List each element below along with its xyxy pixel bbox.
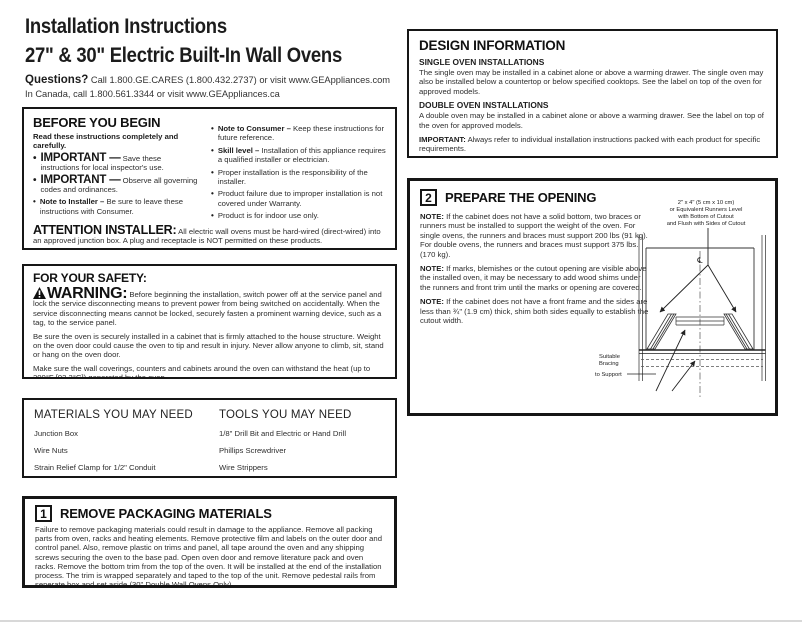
page-title-line1: Installation Instructions: [25, 12, 346, 41]
bullet-icon: •: [33, 176, 37, 195]
bracing-label: Bracing: [599, 361, 619, 367]
step1-heading: REMOVE PACKAGING MATERIALS: [60, 506, 272, 521]
bullet-lead: IMPORTANT —: [41, 152, 121, 164]
materials-heading: MATERIALS YOU MAY NEED: [34, 409, 219, 421]
design-information-box: DESIGN INFORMATION SINGLE OVEN INSTALLAT…: [407, 29, 778, 158]
questions-label: Questions?: [25, 74, 88, 86]
centerline-symbol: ℄: [697, 256, 703, 265]
list-item: • Proper installation is the responsibil…: [211, 168, 386, 187]
materials-column: MATERIALS YOU MAY NEED Junction Box Wire…: [34, 409, 219, 476]
bullet-text: Proper installation is the responsibilit…: [218, 168, 368, 186]
runner-label: and Flush with Sides of Cutout: [667, 221, 746, 227]
step1-body: Failure to remove packaging materials co…: [35, 525, 384, 588]
safety-paragraph-2: Be sure the oven is securely installed i…: [33, 332, 386, 360]
design-info-heading: DESIGN INFORMATION: [419, 38, 766, 53]
bracing-arrow-dashed: [672, 361, 695, 391]
bullet-icon: •: [211, 189, 214, 208]
bullet-lead: Note to Installer –: [40, 197, 105, 206]
important-text: Always refer to individual installation …: [419, 135, 760, 153]
before-you-begin-intro: Read these instructions completely and c…: [33, 132, 201, 151]
double-oven-subheading: DOUBLE OVEN INSTALLATIONS: [419, 100, 766, 110]
note-lead: NOTE:: [420, 264, 444, 273]
bracing-label: Suitable: [599, 354, 620, 360]
step2-heading: PREPARE THE OPENING: [445, 190, 596, 205]
list-item: Phillips Screwdriver: [219, 442, 351, 459]
attention-installer: ATTENTION INSTALLER: All electric wall o…: [33, 226, 386, 246]
step1-number-badge: 1: [35, 505, 52, 522]
list-item: • Note to Consumer – Keep these instruct…: [211, 124, 386, 143]
before-you-begin-box: BEFORE YOU BEGIN Read these instructions…: [22, 107, 397, 250]
bullet-lead: Note to Consumer –: [218, 124, 291, 133]
list-item: Junction Box: [34, 425, 219, 442]
important-lead: IMPORTANT:: [419, 135, 466, 144]
bottom-band: [639, 350, 766, 354]
list-item: • Skill level – Installation of this app…: [211, 146, 386, 165]
runner-label: 2" x 4" (5 cm x 10 cm): [678, 200, 735, 206]
list-item: Wire Nuts: [34, 442, 219, 459]
safety-box: FOR YOUR SAFETY: WARNING: Before beginni…: [22, 264, 397, 379]
header: Installation Instructions 27" & 30" Elec…: [25, 12, 390, 99]
step2-number-badge: 2: [420, 189, 437, 206]
tools-column: TOOLS YOU MAY NEED 1/8" Drill Bit and El…: [219, 409, 351, 476]
prepare-opening-diagram: 2" x 4" (5 cm x 10 cm) or Equivalent Run…: [586, 193, 771, 409]
bullet-text: Product is for indoor use only.: [218, 211, 319, 220]
double-oven-text: A double oven may be installed in a cabi…: [419, 111, 766, 130]
bullet-icon: •: [211, 211, 214, 220]
materials-tools-box: MATERIALS YOU MAY NEED Junction Box Wire…: [22, 398, 397, 478]
right-runner: [724, 314, 753, 349]
design-important: IMPORTANT: Always refer to individual in…: [419, 135, 766, 154]
bullet-lead: Skill level –: [218, 146, 259, 155]
bullet-text: Product failure due to improper installa…: [218, 189, 383, 207]
safety-paragraph-3: Make sure the wall coverings, counters a…: [33, 364, 386, 379]
bullet-icon: •: [211, 124, 214, 143]
note-lead: NOTE:: [420, 212, 444, 221]
questions-text: Call 1.800.GE.CARES (1.800.432.2737) or …: [91, 75, 390, 85]
warning-triangle-icon: [33, 287, 46, 299]
before-you-begin-heading: BEFORE YOU BEGIN: [33, 115, 201, 130]
manual-page: Installation Instructions 27" & 30" Elec…: [0, 0, 802, 622]
tools-heading: TOOLS YOU MAY NEED: [219, 409, 351, 421]
bullet-icon: •: [33, 154, 37, 173]
canada-line: In Canada, call 1.800.561.3344 or visit …: [25, 89, 390, 99]
list-item: • IMPORTANT — Observe all governing code…: [33, 176, 201, 195]
bullet-icon: •: [33, 197, 36, 216]
list-item: • Product is for indoor use only.: [211, 211, 386, 220]
bracing-dashed-lines: [641, 360, 763, 367]
left-runner: [647, 314, 676, 349]
list-item: Wire Strippers: [219, 459, 351, 476]
step1-box: 1 REMOVE PACKAGING MATERIALS Failure to …: [22, 496, 397, 588]
page-title-line2: 27" & 30" Electric Built-In Wall Ovens: [25, 41, 346, 70]
list-item: • IMPORTANT — Save these instructions fo…: [33, 154, 201, 173]
bullet-icon: •: [211, 168, 214, 187]
bullet-icon: •: [211, 146, 214, 165]
list-item: • Product failure due to improper instal…: [211, 189, 386, 208]
runner-label: with Bottom of Cutout: [677, 214, 734, 220]
questions-line: Questions? Call 1.800.GE.CARES (1.800.43…: [25, 74, 390, 86]
bullet-lead: IMPORTANT —: [41, 174, 121, 186]
step2-box: 2 PREPARE THE OPENING NOTE: If the cabin…: [407, 178, 778, 416]
runner-label: or Equivalent Runners Level: [670, 207, 743, 213]
list-item: 1/8" Drill Bit and Electric or Hand Dril…: [219, 425, 351, 442]
warning-paragraph: WARNING: Before beginning the installati…: [33, 287, 386, 328]
attention-lead: ATTENTION INSTALLER:: [33, 223, 176, 237]
single-oven-subheading: SINGLE OVEN INSTALLATIONS: [419, 57, 766, 67]
bracing-label: to Support: [595, 372, 622, 378]
list-item: Strain Relief Clamp for 1/2" Conduit: [34, 459, 219, 476]
list-item: • Note to Installer – Be sure to leave t…: [33, 197, 201, 216]
note-lead: NOTE:: [420, 297, 444, 306]
safety-heading: FOR YOUR SAFETY:: [33, 271, 386, 285]
single-oven-text: The single oven may be installed in a ca…: [419, 68, 766, 96]
